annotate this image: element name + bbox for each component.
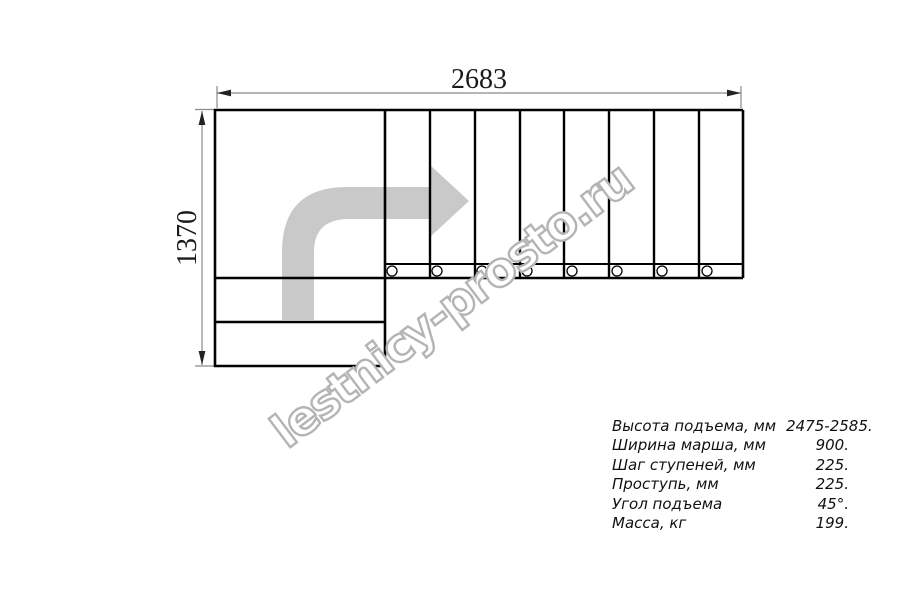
spec-label: Угол подъема: [612, 495, 722, 514]
spec-value: 225.: [806, 475, 849, 494]
spec-table: Высота подъема, мм 2475-2585. Ширина мар…: [612, 417, 849, 533]
spec-row: Угол подъема 45°.: [612, 495, 849, 514]
bolt-circle-icon: [702, 266, 712, 276]
dimension-arrowhead-top: [199, 111, 206, 125]
spec-value: 225.: [806, 456, 849, 475]
spec-value: 900.: [806, 436, 849, 455]
spec-value: 2475-2585.: [776, 417, 873, 436]
dimension-arrowhead-right: [727, 90, 741, 97]
stringer-bolts: [387, 266, 712, 276]
bolt-circle-icon: [657, 266, 667, 276]
spec-row: Ширина марша, мм 900.: [612, 436, 849, 455]
spec-row: Шаг ступеней, мм 225.: [612, 456, 849, 475]
bolt-circle-icon: [432, 266, 442, 276]
spec-label: Высота подъема, мм: [612, 417, 776, 436]
dimension-arrowhead-bottom: [199, 351, 206, 365]
spec-label: Ширина марша, мм: [612, 436, 766, 455]
spec-label: Масса, кг: [612, 514, 686, 533]
dimension-width-label: 2683: [451, 64, 507, 95]
spec-row: Проступь, мм 225.: [612, 475, 849, 494]
spec-row: Масса, кг 199.: [612, 514, 849, 533]
bolt-circle-icon: [387, 266, 397, 276]
drawing-canvas: 2683 1370: [0, 0, 900, 600]
bolt-circle-icon: [612, 266, 622, 276]
dimension-arrowhead-left: [217, 90, 231, 97]
dimension-height-label: 1370: [172, 210, 203, 266]
bolt-circle-icon: [567, 266, 577, 276]
spec-row: Высота подъема, мм 2475-2585.: [612, 417, 849, 436]
spec-label: Проступь, мм: [612, 475, 719, 494]
spec-label: Шаг ступеней, мм: [612, 456, 756, 475]
spec-value: 199.: [806, 514, 849, 533]
spec-value: 45°.: [808, 495, 849, 514]
